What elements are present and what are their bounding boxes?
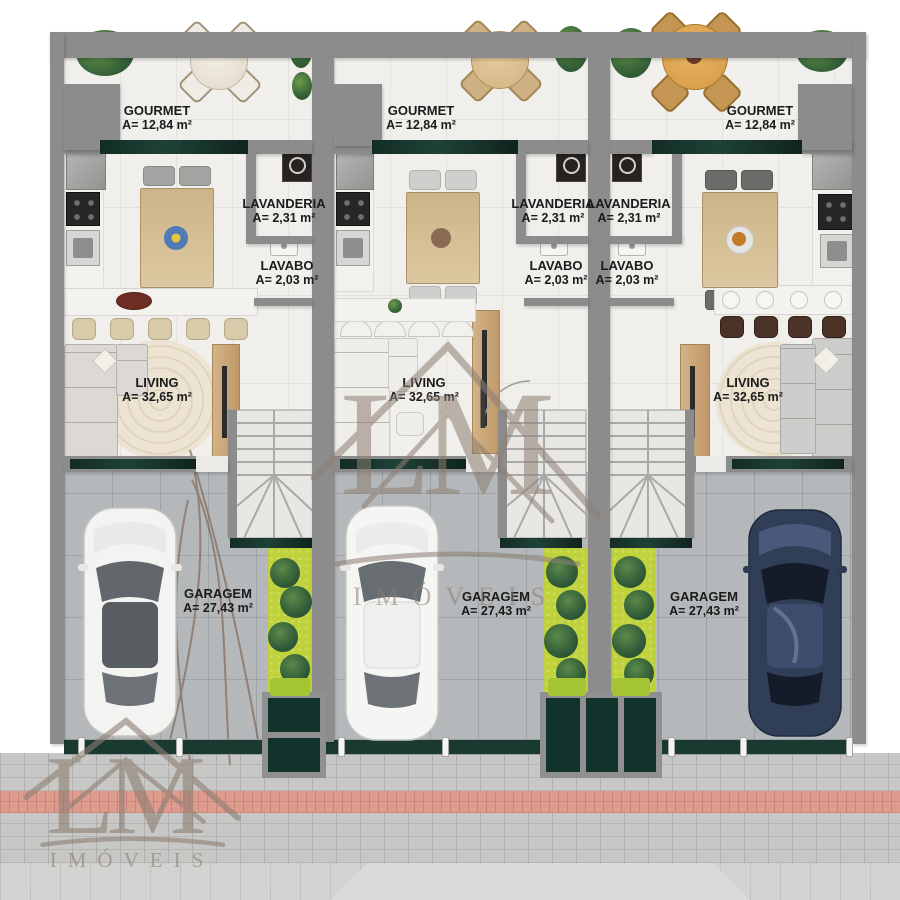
cooktop — [818, 194, 854, 230]
room-area: A= 32,65 m² — [713, 390, 783, 405]
hedge — [270, 678, 310, 696]
stool — [110, 318, 134, 340]
garden-ledge — [610, 538, 692, 548]
stool — [148, 318, 172, 340]
room-label-garagem-u1: GARAGEM A= 27,43 m² — [183, 586, 253, 616]
laundry-wall — [516, 150, 526, 240]
bush — [614, 556, 646, 588]
sidewalk-pavers — [0, 813, 900, 863]
plant — [292, 72, 312, 100]
tv — [222, 366, 227, 438]
unit3-gourmet-counter — [652, 140, 802, 154]
room-name: LIVING — [713, 375, 783, 390]
unit2-gourmet-counter — [372, 140, 518, 154]
place-setting — [722, 291, 740, 309]
room-area: A= 2,31 m² — [587, 211, 670, 226]
room-area: A= 12,84 m² — [122, 118, 192, 133]
room-name: LAVANDERIA — [242, 196, 325, 211]
ottoman — [396, 412, 424, 436]
stool — [788, 316, 812, 338]
room-area: A= 2,31 m² — [242, 211, 325, 226]
stool — [186, 318, 210, 340]
room-area: A= 32,65 m² — [122, 390, 192, 405]
gate-post — [846, 737, 853, 757]
washing-machine — [612, 152, 642, 182]
room-label-lavabo-u3: LAVABO A= 2,03 m² — [596, 258, 659, 288]
room-label-lavabo-u1: LAVABO A= 2,03 m² — [256, 258, 319, 288]
party-wall-2 — [588, 58, 610, 742]
gate-post — [78, 737, 85, 757]
hedge — [612, 678, 650, 696]
unit1-gourmet-counter — [100, 140, 248, 154]
wall-stub — [248, 140, 312, 154]
wall-stub — [518, 140, 588, 154]
kitchen-island — [64, 288, 258, 316]
dining-chair — [741, 170, 773, 190]
cooktop — [66, 192, 100, 226]
dining-chair — [445, 170, 477, 190]
window-ledge — [340, 459, 466, 469]
room-name: GOURMET — [122, 103, 192, 118]
room-label-lavabo-u2: LAVABO A= 2,03 m² — [525, 258, 588, 288]
left-wall — [50, 32, 64, 744]
room-area: A= 2,31 m² — [511, 211, 594, 226]
garden-ledge — [500, 538, 582, 548]
small-plant — [388, 299, 402, 313]
room-label-garagem-u3: GARAGEM A= 27,43 m² — [669, 589, 739, 619]
stool — [754, 316, 778, 338]
front-planter — [540, 692, 662, 778]
room-name: GOURMET — [386, 103, 456, 118]
room-name: GARAGEM — [183, 586, 253, 601]
room-area: A= 12,84 m² — [386, 118, 456, 133]
car-white — [340, 504, 444, 742]
table-centerpiece — [164, 226, 188, 250]
room-name: LAVANDERIA — [587, 196, 670, 211]
room-label-garagem-u2: GARAGEM A= 27,43 m² — [461, 589, 531, 619]
dining-chair — [179, 166, 211, 186]
room-name: LAVABO — [525, 258, 588, 273]
fridge — [336, 152, 374, 190]
stool — [72, 318, 96, 340]
stairs — [498, 410, 586, 546]
room-label-gourmet-u3: GOURMET A= 12,84 m² — [725, 103, 795, 133]
room-name: LAVABO — [596, 258, 659, 273]
place-setting — [756, 291, 774, 309]
door-threshold — [696, 456, 726, 472]
kitchen-sink — [820, 234, 854, 268]
lavabo-wall — [254, 298, 312, 306]
room-label-lavanderia-u3: LAVANDERIA A= 2,31 m² — [587, 196, 670, 226]
bbq-niche — [798, 84, 852, 150]
lavabo-wall — [610, 298, 674, 306]
kitchen-sink — [66, 230, 100, 266]
fruit-bowl — [732, 232, 746, 246]
bush — [612, 624, 646, 658]
room-area: A= 32,65 m² — [389, 390, 459, 405]
top-wall — [50, 32, 866, 58]
gate-post — [668, 737, 675, 757]
place-setting — [824, 291, 842, 309]
room-area: A= 2,03 m² — [256, 273, 319, 288]
place-setting — [790, 291, 808, 309]
room-label-living-u2: LIVING A= 32,65 m² — [389, 375, 459, 405]
hedge — [548, 678, 586, 696]
bush — [546, 556, 578, 588]
window-ledge — [70, 459, 196, 469]
window-ledge — [732, 459, 844, 469]
door-threshold — [196, 456, 228, 472]
gate-post — [338, 737, 345, 757]
room-name: LAVANDERIA — [511, 196, 594, 211]
room-label-lavanderia-u2: LAVANDERIA A= 2,31 m² — [511, 196, 594, 226]
car-navy — [744, 508, 846, 738]
laundry-wall — [246, 236, 312, 244]
laundry-wall — [610, 236, 682, 244]
right-wall — [852, 32, 866, 744]
room-name: GARAGEM — [461, 589, 531, 604]
gate-post — [442, 737, 449, 757]
bush — [624, 590, 654, 620]
room-label-gourmet-u2: GOURMET A= 12,84 m² — [386, 103, 456, 133]
party-wall-1 — [312, 58, 334, 742]
cooktop — [336, 192, 370, 226]
bush — [544, 624, 578, 658]
gate-post — [740, 737, 747, 757]
laundry-wall — [672, 150, 682, 240]
stairs — [606, 410, 694, 546]
bush — [556, 590, 586, 620]
laundry-wall — [516, 236, 588, 244]
washing-machine — [282, 152, 312, 182]
lavabo-wall — [524, 298, 588, 306]
stool — [224, 318, 248, 340]
gate-post — [176, 737, 183, 757]
room-name: LIVING — [389, 375, 459, 390]
washing-machine — [556, 152, 586, 182]
dining-chair — [705, 170, 737, 190]
food-platter — [116, 292, 152, 310]
car-white — [78, 506, 182, 738]
door-threshold — [466, 456, 498, 472]
wall-stub — [610, 140, 652, 154]
table-centerpiece — [431, 228, 451, 248]
room-area: A= 27,43 m² — [669, 604, 739, 619]
room-name: GARAGEM — [669, 589, 739, 604]
driveway-ramp — [330, 863, 750, 900]
laundry-wall — [246, 150, 256, 240]
sofa — [334, 338, 390, 458]
room-name: LAVABO — [256, 258, 319, 273]
room-label-living-u3: LIVING A= 32,65 m² — [713, 375, 783, 405]
dining-chair — [143, 166, 175, 186]
room-label-lavanderia-u1: LAVANDERIA A= 2,31 m² — [242, 196, 325, 226]
tactile-paving-strip — [0, 791, 900, 813]
room-area: A= 27,43 m² — [183, 601, 253, 616]
dining-chair — [409, 170, 441, 190]
room-name: GOURMET — [725, 103, 795, 118]
fridge — [66, 152, 106, 190]
kitchen-island — [334, 298, 476, 322]
room-area: A= 2,03 m² — [596, 273, 659, 288]
sofa-seat — [780, 344, 816, 454]
room-area: A= 27,43 m² — [461, 604, 531, 619]
room-area: A= 2,03 m² — [525, 273, 588, 288]
room-label-living-u1: LIVING A= 32,65 m² — [122, 375, 192, 405]
stool — [822, 316, 846, 338]
bbq-niche — [334, 84, 382, 146]
room-name: LIVING — [122, 375, 192, 390]
floor-plan: GOURMET A= 12,84 m² LAVANDERIA A= 2,31 m… — [0, 0, 900, 900]
room-label-gourmet-u1: GOURMET A= 12,84 m² — [122, 103, 192, 133]
room-area: A= 12,84 m² — [725, 118, 795, 133]
fridge — [812, 150, 854, 190]
kitchen-sink — [336, 230, 370, 266]
garden-ledge — [230, 538, 312, 548]
front-planter — [262, 692, 326, 778]
stool — [720, 316, 744, 338]
